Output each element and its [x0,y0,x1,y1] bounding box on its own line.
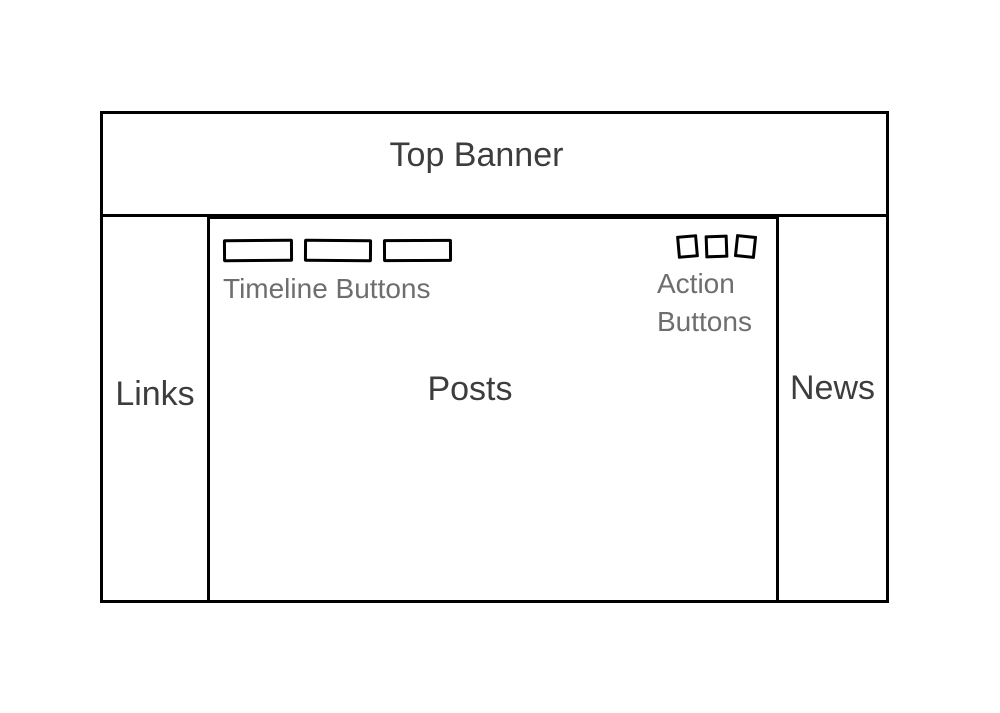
news-label: News [779,368,886,408]
wireframe-canvas: Top Banner Links Timeline Buttons [0,0,1000,713]
action-button-shape [676,234,699,259]
columns-row: Links Timeline Buttons Action Buttons [103,217,886,600]
timeline-button-shape [304,239,372,262]
wireframe-frame: Top Banner Links Timeline Buttons [100,111,889,603]
timeline-buttons-group: Timeline Buttons [223,239,452,305]
action-button-shape [734,234,757,259]
timeline-button-shape [223,239,293,262]
action-buttons-label: Action Buttons [657,265,756,341]
posts-region: Timeline Buttons Action Buttons Posts [210,217,776,600]
timeline-buttons-label: Timeline Buttons [223,273,452,305]
action-buttons-label-line1: Action [657,265,756,303]
action-button-shape [705,235,729,259]
timeline-button-shape [383,239,452,262]
news-sidebar-region: News [776,217,886,600]
action-buttons-label-line2: Buttons [657,303,756,341]
action-buttons-group: Action Buttons [657,235,756,341]
top-banner-label: Top Banner [390,135,564,175]
top-banner-region: Top Banner [103,114,886,217]
posts-label: Posts [187,369,753,409]
action-buttons-row [677,235,756,258]
timeline-buttons-row [223,239,452,262]
